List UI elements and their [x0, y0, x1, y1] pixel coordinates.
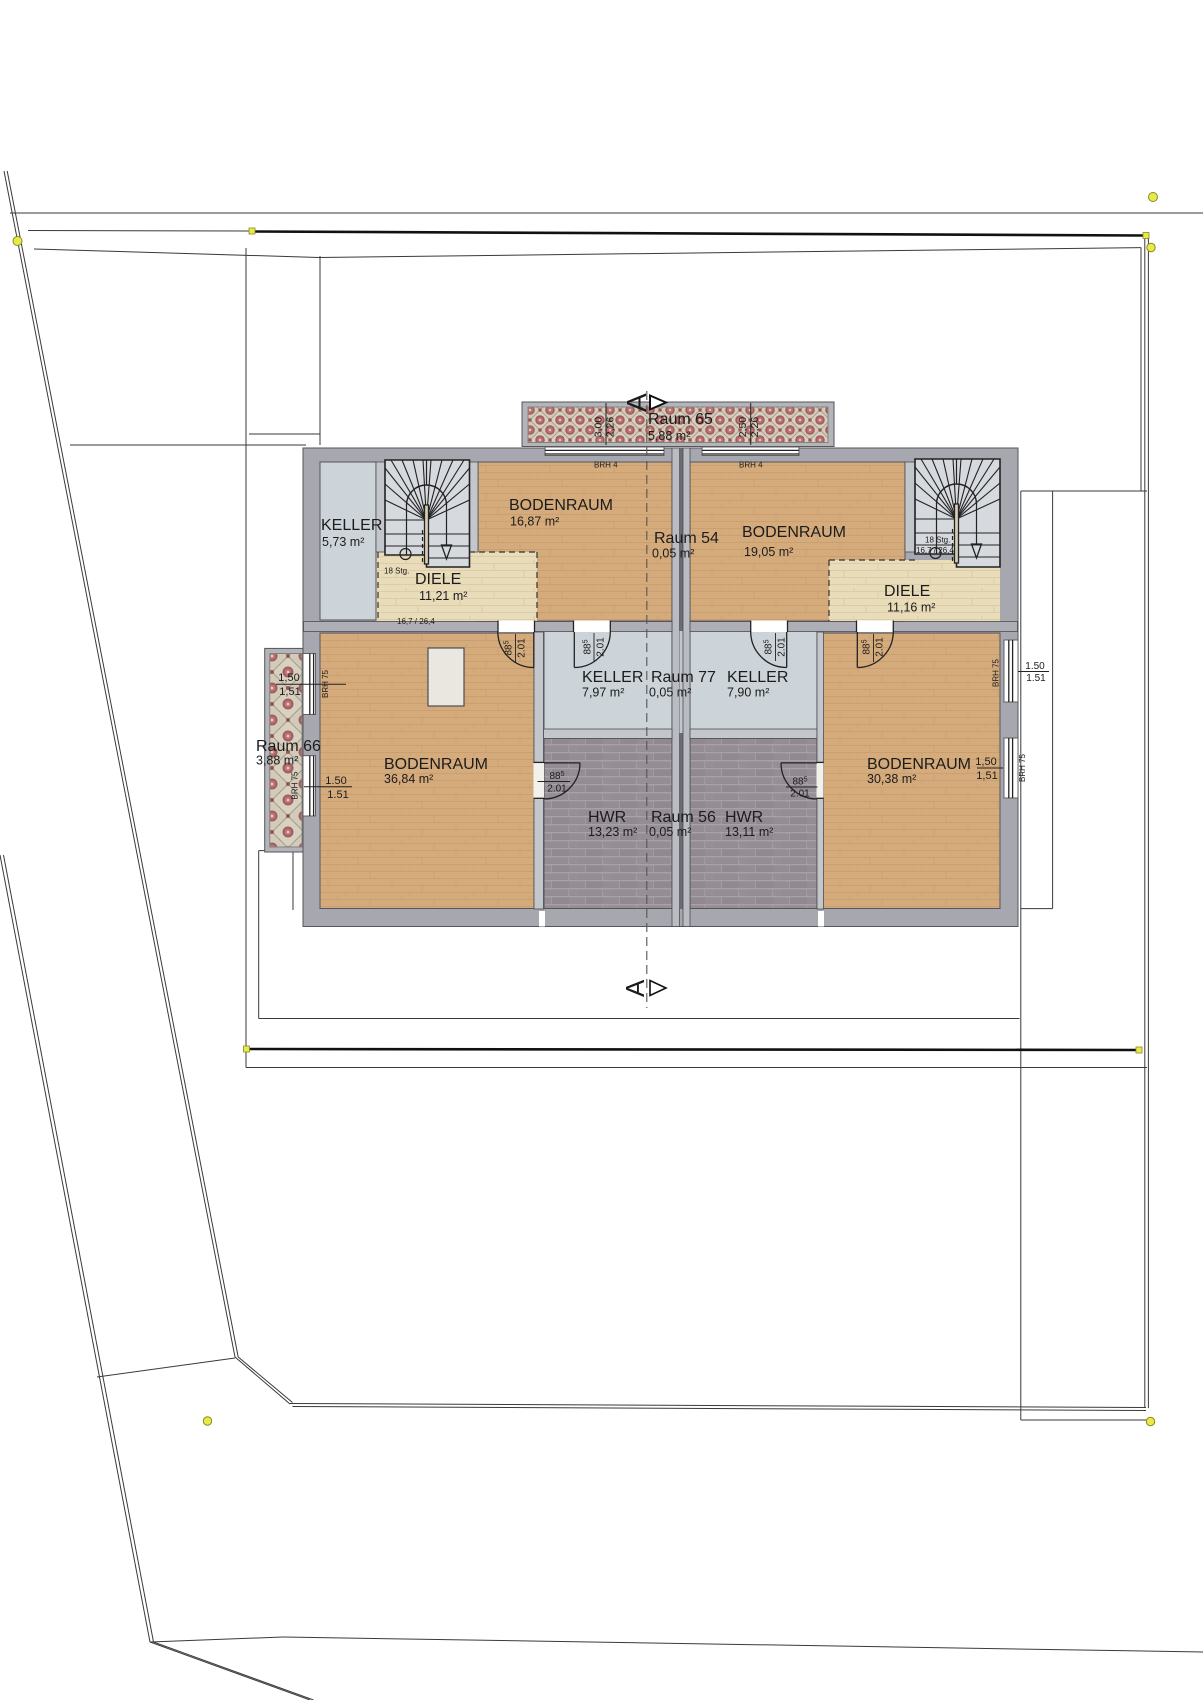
svg-text:BRH 75: BRH 75 [1018, 753, 1027, 782]
svg-text:Raum 65: Raum 65 [648, 411, 713, 428]
svg-text:Raum 56: Raum 56 [651, 809, 716, 826]
svg-text:2,26: 2,26 [605, 417, 617, 438]
svg-text:KELLER: KELLER [582, 669, 643, 686]
svg-text:1,51: 1,51 [976, 770, 997, 782]
svg-text:0,05 m²: 0,05 m² [649, 686, 691, 700]
svg-text:1.51: 1.51 [327, 789, 348, 801]
svg-text:13,23 m²: 13,23 m² [588, 825, 637, 839]
svg-text:BRH 4: BRH 4 [594, 461, 618, 470]
svg-text:1.50: 1.50 [1025, 661, 1045, 672]
svg-text:A: A [620, 979, 650, 997]
svg-text:1,51: 1,51 [279, 686, 300, 698]
svg-text:11,21 m²: 11,21 m² [419, 589, 467, 603]
svg-text:2,50: 2,50 [737, 417, 749, 438]
svg-text:3,00: 3,00 [593, 417, 605, 438]
svg-text:36,84 m²: 36,84 m² [384, 772, 433, 786]
svg-text:1.51: 1.51 [1026, 673, 1046, 684]
svg-text:BRH 75: BRH 75 [992, 658, 1001, 687]
svg-text:16,87 m²: 16,87 m² [510, 515, 559, 529]
svg-text:1,50: 1,50 [975, 756, 996, 768]
svg-text:1,50: 1,50 [278, 672, 299, 684]
svg-text:HWR: HWR [725, 809, 763, 826]
svg-text:KELLER: KELLER [727, 669, 788, 686]
svg-text:Raum 77: Raum 77 [651, 669, 716, 686]
svg-text:3,88 m²: 3,88 m² [256, 754, 298, 768]
svg-text:2.01: 2.01 [875, 637, 886, 657]
svg-text:DIELE: DIELE [884, 583, 930, 600]
svg-text:BODENRAUM: BODENRAUM [509, 497, 613, 514]
svg-text:KELLER: KELLER [321, 517, 382, 534]
svg-text:Raum 54: Raum 54 [654, 530, 719, 547]
svg-text:16,7 / 26,4: 16,7 / 26,4 [916, 546, 954, 555]
svg-text:5,73 m²: 5,73 m² [322, 535, 364, 549]
svg-text:0,05 m²: 0,05 m² [652, 547, 694, 561]
svg-text:2.01: 2.01 [777, 637, 788, 657]
svg-text:HWR: HWR [588, 809, 626, 826]
svg-text:A: A [621, 393, 652, 412]
svg-text:BRH 4: BRH 4 [739, 461, 763, 470]
svg-text:2.01: 2.01 [790, 789, 810, 800]
svg-text:18 Stg.: 18 Stg. [384, 567, 409, 576]
svg-text:16,7 / 26,4: 16,7 / 26,4 [397, 617, 435, 626]
svg-text:BODENRAUM: BODENRAUM [867, 756, 971, 773]
svg-text:11,16 m²: 11,16 m² [887, 601, 935, 615]
svg-text:DIELE: DIELE [415, 571, 461, 588]
svg-text:18 Stg.: 18 Stg. [925, 536, 950, 545]
svg-text:2,26: 2,26 [749, 417, 761, 438]
svg-text:BRH 75: BRH 75 [321, 669, 330, 698]
svg-text:5,88 m²: 5,88 m² [648, 429, 690, 443]
svg-text:2.01: 2.01 [517, 638, 528, 658]
svg-text:BODENRAUM: BODENRAUM [384, 756, 488, 773]
svg-text:30,38 m²: 30,38 m² [867, 772, 916, 786]
svg-text:BODENRAUM: BODENRAUM [742, 524, 846, 541]
svg-text:7,97 m²: 7,97 m² [582, 686, 624, 700]
svg-text:2.01: 2.01 [547, 784, 567, 795]
svg-text:2.01: 2.01 [596, 637, 607, 657]
svg-text:Raum 66: Raum 66 [256, 738, 321, 755]
svg-text:BRH 75: BRH 75 [291, 771, 300, 800]
svg-text:19,05 m²: 19,05 m² [744, 545, 793, 559]
svg-text:7,90 m²: 7,90 m² [727, 686, 769, 700]
svg-text:0,05 m²: 0,05 m² [649, 825, 691, 839]
svg-text:13,11 m²: 13,11 m² [725, 825, 773, 839]
svg-text:1.50: 1.50 [325, 775, 346, 787]
